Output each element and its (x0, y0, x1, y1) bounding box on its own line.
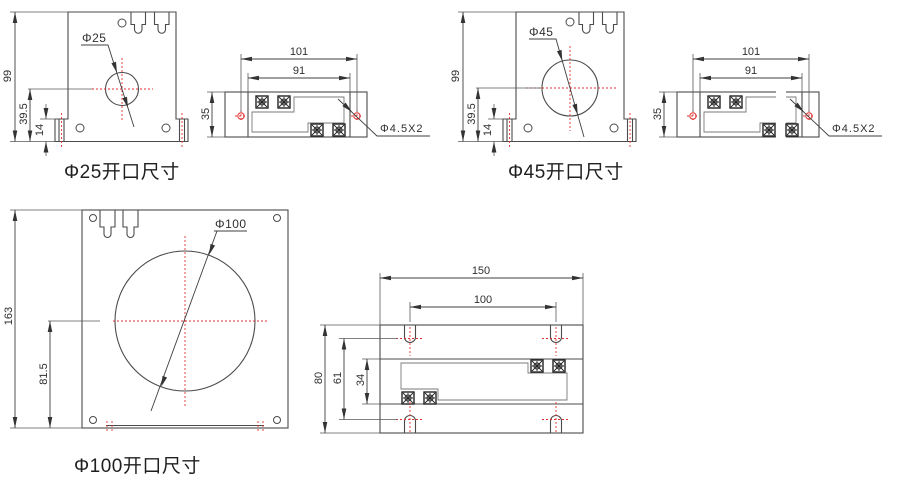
hole-label: Φ45 (529, 25, 553, 39)
figure-front-view-phi100: 163 81.5 Φ100 Φ100开口尺寸 (3, 210, 288, 477)
terminal-slot (579, 12, 594, 33)
extension-lines (10, 210, 100, 428)
dim-center-height: 81.5 (38, 363, 50, 384)
dim-height: 99 (450, 70, 462, 82)
dim-depth: 80 (313, 372, 325, 384)
dim-depth: 35 (200, 108, 212, 120)
centerlines (510, 46, 631, 148)
core-split-gap (776, 88, 786, 140)
centerlines (107, 236, 268, 431)
figure-top-view-phi25: 101 91 35 Φ4.5X2 (200, 46, 430, 137)
screw-hole (76, 124, 84, 132)
body-outline (503, 12, 636, 142)
dim-center-height: 39.5 (466, 103, 478, 124)
dim-base: 14 (482, 124, 494, 136)
figure-top-view-phi45: 101 91 35 Φ4.5X2 (652, 46, 882, 140)
dim-band: 34 (355, 374, 367, 386)
drawing-sheet: 99 39.5 14 Φ25 Φ25开口尺寸 101 91 35 Φ4.5X2 (0, 0, 900, 482)
terminal-slot (131, 12, 146, 33)
dim-width: 150 (472, 265, 490, 277)
dim-width: 101 (290, 46, 308, 58)
screw-hole (90, 417, 97, 424)
figure-front-view-phi45: 99 39.5 14 Φ45 Φ45开口尺寸 (450, 12, 636, 183)
dim-hole-spacing: 91 (745, 65, 757, 77)
dim-slot-spacing: 100 (474, 294, 492, 306)
dim-inner: 61 (332, 372, 344, 384)
ct-dimension-drawing: 99 39.5 14 Φ25 Φ25开口尺寸 101 91 35 Φ4.5X2 (0, 0, 900, 482)
figure-title: Φ45开口尺寸 (508, 161, 624, 183)
extension-lines (320, 273, 583, 433)
hole-label: Φ25 (82, 31, 106, 45)
dim-hole-spacing: 91 (293, 65, 305, 77)
figure-front-view-phi25: 99 39.5 14 Φ25 Φ25开口尺寸 (2, 12, 188, 183)
screw-hole (90, 215, 97, 222)
dim-width: 101 (742, 46, 760, 58)
dim-height: 99 (2, 70, 14, 82)
body-outline (225, 92, 367, 137)
notch-centerlines (396, 327, 570, 432)
screw-label: Φ4.5X2 (832, 123, 876, 135)
figure-title: Φ25开口尺寸 (64, 161, 180, 183)
figure-top-view-phi100: 150 100 80 61 34 (313, 265, 583, 433)
screw-label: Φ4.5X2 (380, 123, 424, 135)
screw-hole (566, 18, 574, 26)
hole-label: Φ100 (215, 217, 247, 231)
leader-phi25 (81, 45, 134, 127)
dim-base: 14 (34, 124, 46, 136)
screw-hole (162, 124, 170, 132)
terminal-slot (603, 12, 618, 33)
screw-hole (118, 19, 126, 27)
terminal-slot (100, 210, 115, 238)
screw-hole (274, 417, 281, 424)
extension-lines (10, 12, 92, 156)
terminal-slot (155, 12, 170, 33)
body-outline (55, 12, 188, 142)
screw-hole (274, 215, 281, 222)
dim-depth: 35 (652, 108, 664, 120)
screw-hole (524, 124, 532, 132)
dim-height: 163 (3, 307, 15, 325)
terminal-slot (123, 210, 138, 238)
figure-title: Φ100开口尺寸 (74, 455, 201, 477)
screw-hole (610, 124, 618, 132)
centerlines (62, 58, 183, 148)
dim-center-height: 39.5 (18, 103, 30, 124)
